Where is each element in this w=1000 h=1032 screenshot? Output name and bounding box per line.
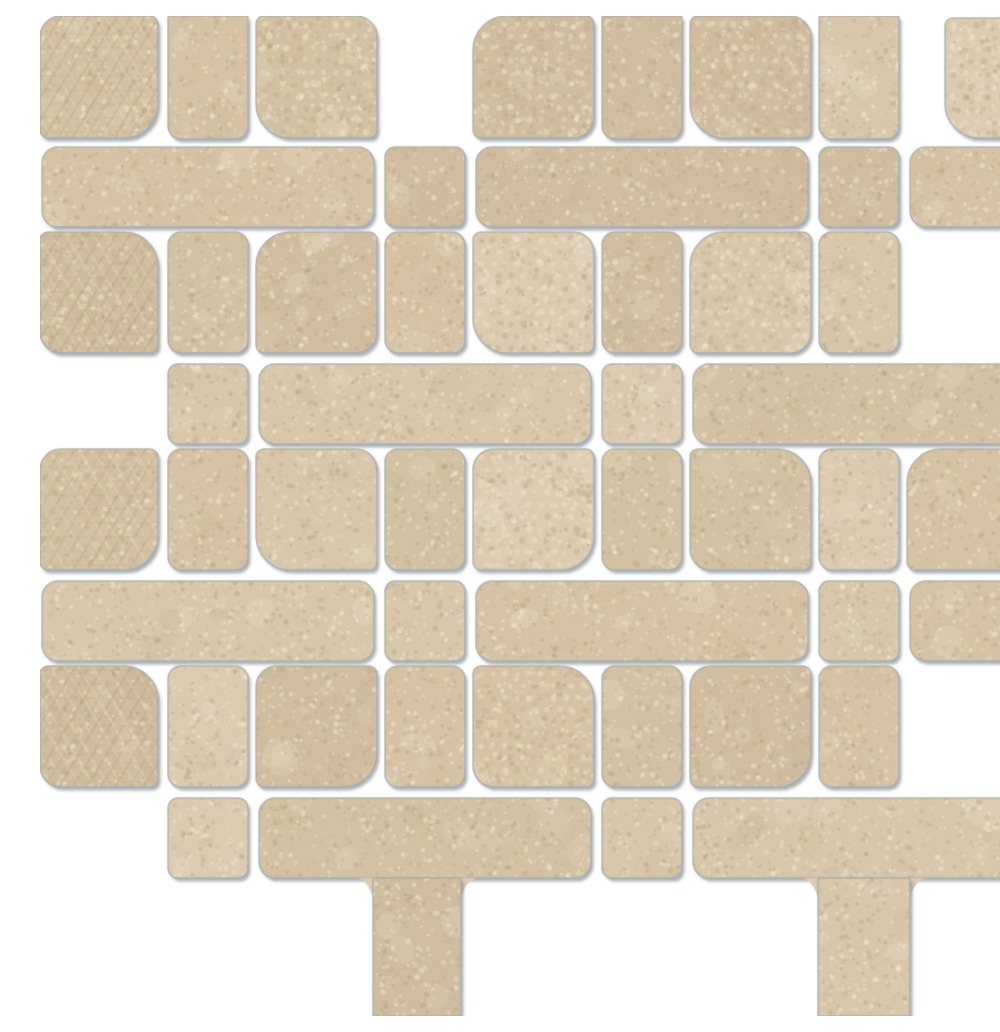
mosaic-tile-product-image: [40, 16, 1000, 1016]
mosaic-sheet-canvas: [40, 16, 1000, 1016]
